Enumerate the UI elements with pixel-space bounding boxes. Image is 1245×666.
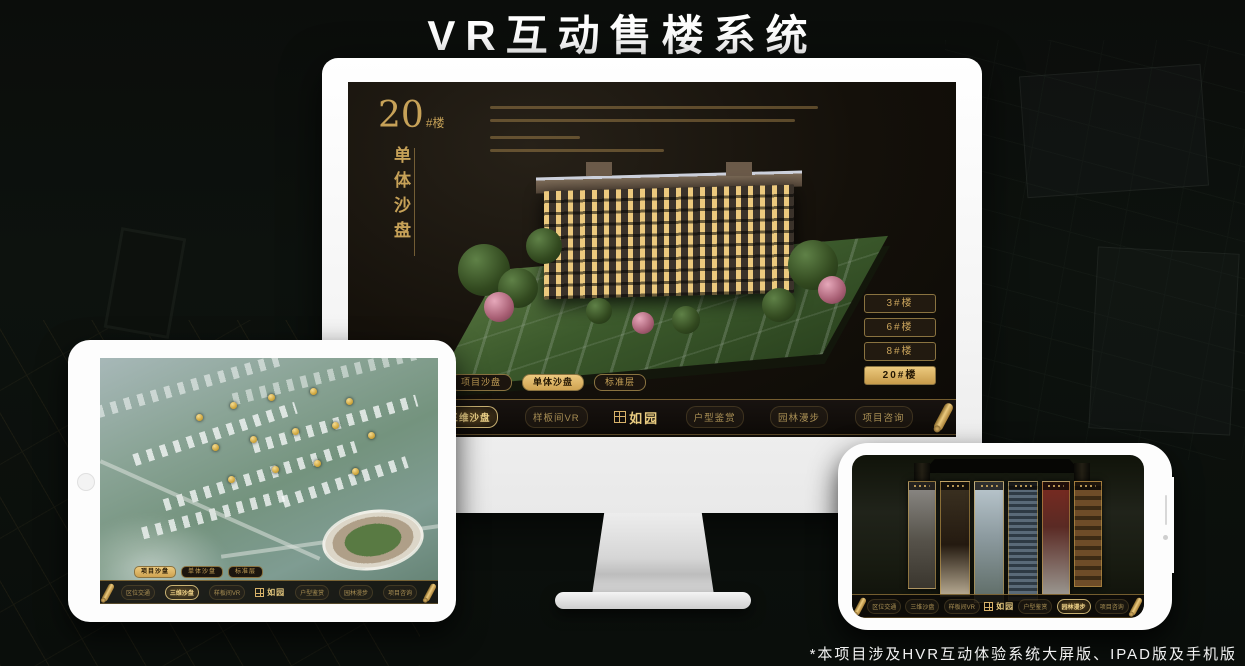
gold-scroll-icon[interactable] <box>423 582 437 602</box>
scene-panel-garden[interactable] <box>974 481 1004 603</box>
heading-vertical-title: 单体沙盘 <box>388 146 413 246</box>
tablet-device: 项目沙盘 单体沙盘 标准层 区位交通 三维沙盘 样板间VR 如园 户型鉴赏 园林… <box>68 340 456 622</box>
tab-standard-floor[interactable]: 标准层 <box>594 374 646 391</box>
paragraph-line <box>490 106 818 109</box>
paragraph-line <box>490 119 795 122</box>
tab-single-sandtable[interactable]: 单体沙盘 <box>522 374 584 391</box>
tablet-nav-location[interactable]: 区位交通 <box>121 585 155 600</box>
stadium <box>318 503 427 577</box>
tablet-tab-standard-floor[interactable]: 标准层 <box>228 566 263 578</box>
building-marker[interactable] <box>196 414 203 421</box>
building-3d-model[interactable] <box>436 148 876 388</box>
building-marker[interactable] <box>314 460 321 467</box>
tree <box>762 288 796 322</box>
floor-button-group: 3#楼 6#楼 8#楼 20#楼 <box>864 294 936 385</box>
tablet-nav-floorplans[interactable]: 户型鉴赏 <box>295 585 329 600</box>
seal-square-icon <box>614 411 626 423</box>
scene-panel-building[interactable] <box>1008 481 1038 601</box>
stage: VR互动售楼系统 20#楼 单体沙盘 <box>0 0 1245 666</box>
tablet-nav-garden-walk[interactable]: 园林漫步 <box>339 585 373 600</box>
tablet-nav-showroom-vr[interactable]: 样板间VR <box>209 585 245 600</box>
ruyuan-logo: 如园 <box>255 587 285 598</box>
floor-button-3[interactable]: 3#楼 <box>864 294 936 313</box>
phone-notch <box>1156 477 1174 573</box>
background-photo <box>1019 64 1209 198</box>
phone-camera-dot <box>1163 535 1168 540</box>
gold-scroll-icon[interactable] <box>101 582 115 602</box>
tablet-tab-single-sandtable[interactable]: 单体沙盘 <box>181 566 223 578</box>
gold-scroll-icon[interactable] <box>853 596 867 616</box>
panel-caption <box>909 482 935 490</box>
model-building <box>544 185 794 300</box>
building-marker[interactable] <box>346 398 353 405</box>
logo-text: 如园 <box>996 601 1014 612</box>
building-marker[interactable] <box>310 388 317 395</box>
building-marker[interactable] <box>352 468 359 475</box>
scene-panel-interior-warm[interactable] <box>940 481 970 597</box>
building-marker[interactable] <box>268 394 275 401</box>
phone-navbar: 区位交通 三维沙盘 样板间VR 如园 户型鉴赏 园林漫步 项目咨询 <box>852 594 1144 618</box>
tree <box>526 228 562 264</box>
panel-caption <box>941 482 969 490</box>
footnote: *本项目涉及HVR互动体验系统大屏版、IPAD版及手机版 <box>810 643 1237 664</box>
panel-caption <box>1043 482 1069 490</box>
building-marker[interactable] <box>368 432 375 439</box>
tree <box>672 306 700 334</box>
monitor-stand-neck <box>592 513 714 595</box>
aerial-buildings <box>132 402 297 466</box>
seal-square-icon <box>984 602 993 611</box>
nav-item-garden-walk[interactable]: 园林漫步 <box>770 406 828 428</box>
tablet-nav-consult[interactable]: 项目咨询 <box>383 585 417 600</box>
tablet-view-tabs: 项目沙盘 单体沙盘 标准层 <box>134 566 263 578</box>
logo-text: 如园 <box>629 408 659 427</box>
seal-square-icon <box>255 588 264 597</box>
nav-item-floorplans[interactable]: 户型鉴赏 <box>686 406 744 428</box>
phone-nav-floorplans[interactable]: 户型鉴赏 <box>1018 599 1052 614</box>
building-marker[interactable] <box>250 436 257 443</box>
background-photo <box>1088 246 1239 435</box>
floor-button-6[interactable]: 6#楼 <box>864 318 936 337</box>
flower-bush <box>484 292 514 322</box>
panel-caption <box>1075 482 1101 490</box>
flower-bush <box>818 276 846 304</box>
phone-nav-garden-walk[interactable]: 园林漫步 <box>1057 599 1091 614</box>
paragraph-line <box>490 136 580 139</box>
ruyuan-logo: 如园 <box>984 601 1014 612</box>
nav-item-showroom-vr[interactable]: 样板间VR <box>525 406 588 428</box>
floor-button-8[interactable]: 8#楼 <box>864 342 936 361</box>
monitor-stand-base <box>555 592 751 609</box>
tablet-home-button[interactable] <box>77 473 95 491</box>
gold-scroll-icon[interactable] <box>932 402 954 433</box>
building-marker[interactable] <box>228 476 235 483</box>
building-marker[interactable] <box>332 422 339 429</box>
gate-roof <box>922 459 1082 473</box>
nav-item-consult[interactable]: 项目咨询 <box>855 406 913 428</box>
floor-button-20[interactable]: 20#楼 <box>864 366 936 385</box>
ruyuan-logo: 如园 <box>614 408 659 427</box>
model-dormer <box>726 162 752 176</box>
building-marker[interactable] <box>212 444 219 451</box>
view-tabs: 项目沙盘 单体沙盘 标准层 <box>450 374 646 391</box>
tablet-tab-project-sandtable[interactable]: 项目沙盘 <box>134 566 176 578</box>
scene-panel-art[interactable] <box>1042 481 1070 595</box>
phone-nav-location[interactable]: 区位交通 <box>867 599 901 614</box>
tablet-navbar: 区位交通 三维沙盘 样板间VR 如园 户型鉴赏 园林漫步 项目咨询 <box>100 580 438 604</box>
scene-panel-interior-grey[interactable] <box>908 481 936 589</box>
gold-scroll-icon[interactable] <box>1129 596 1143 616</box>
phone-nav-showroom-vr[interactable]: 样板间VR <box>944 599 980 614</box>
model-dormer <box>586 162 612 176</box>
building-marker[interactable] <box>272 466 279 473</box>
panel-caption <box>975 482 1003 490</box>
phone-device: 区位交通 三维沙盘 样板间VR 如园 户型鉴赏 园林漫步 项目咨询 <box>838 443 1172 630</box>
logo-text: 如园 <box>267 587 285 598</box>
phone-screen: 区位交通 三维沙盘 样板间VR 如园 户型鉴赏 园林漫步 项目咨询 <box>852 455 1144 618</box>
building-marker[interactable] <box>230 402 237 409</box>
panel-caption <box>1009 482 1037 490</box>
tablet-screen: 项目沙盘 单体沙盘 标准层 区位交通 三维沙盘 样板间VR 如园 户型鉴赏 园林… <box>100 358 438 604</box>
phone-nav-3d-sandtable[interactable]: 三维沙盘 <box>905 599 939 614</box>
phone-nav-consult[interactable]: 项目咨询 <box>1095 599 1129 614</box>
phone-speaker-slit <box>1165 495 1167 525</box>
heading-divider <box>414 148 415 256</box>
page-title: VR互动售楼系统 <box>0 2 1245 63</box>
tree <box>586 298 612 324</box>
tablet-nav-3d-sandtable[interactable]: 三维沙盘 <box>165 585 199 600</box>
flower-bush <box>632 312 654 334</box>
scene-panel-shelf[interactable] <box>1074 481 1102 587</box>
building-number: 20 <box>378 95 424 136</box>
building-heading: 20#楼 <box>378 98 445 134</box>
tab-project-sandtable[interactable]: 项目沙盘 <box>450 374 512 391</box>
building-unit: #楼 <box>426 116 445 130</box>
building-marker[interactable] <box>292 428 299 435</box>
